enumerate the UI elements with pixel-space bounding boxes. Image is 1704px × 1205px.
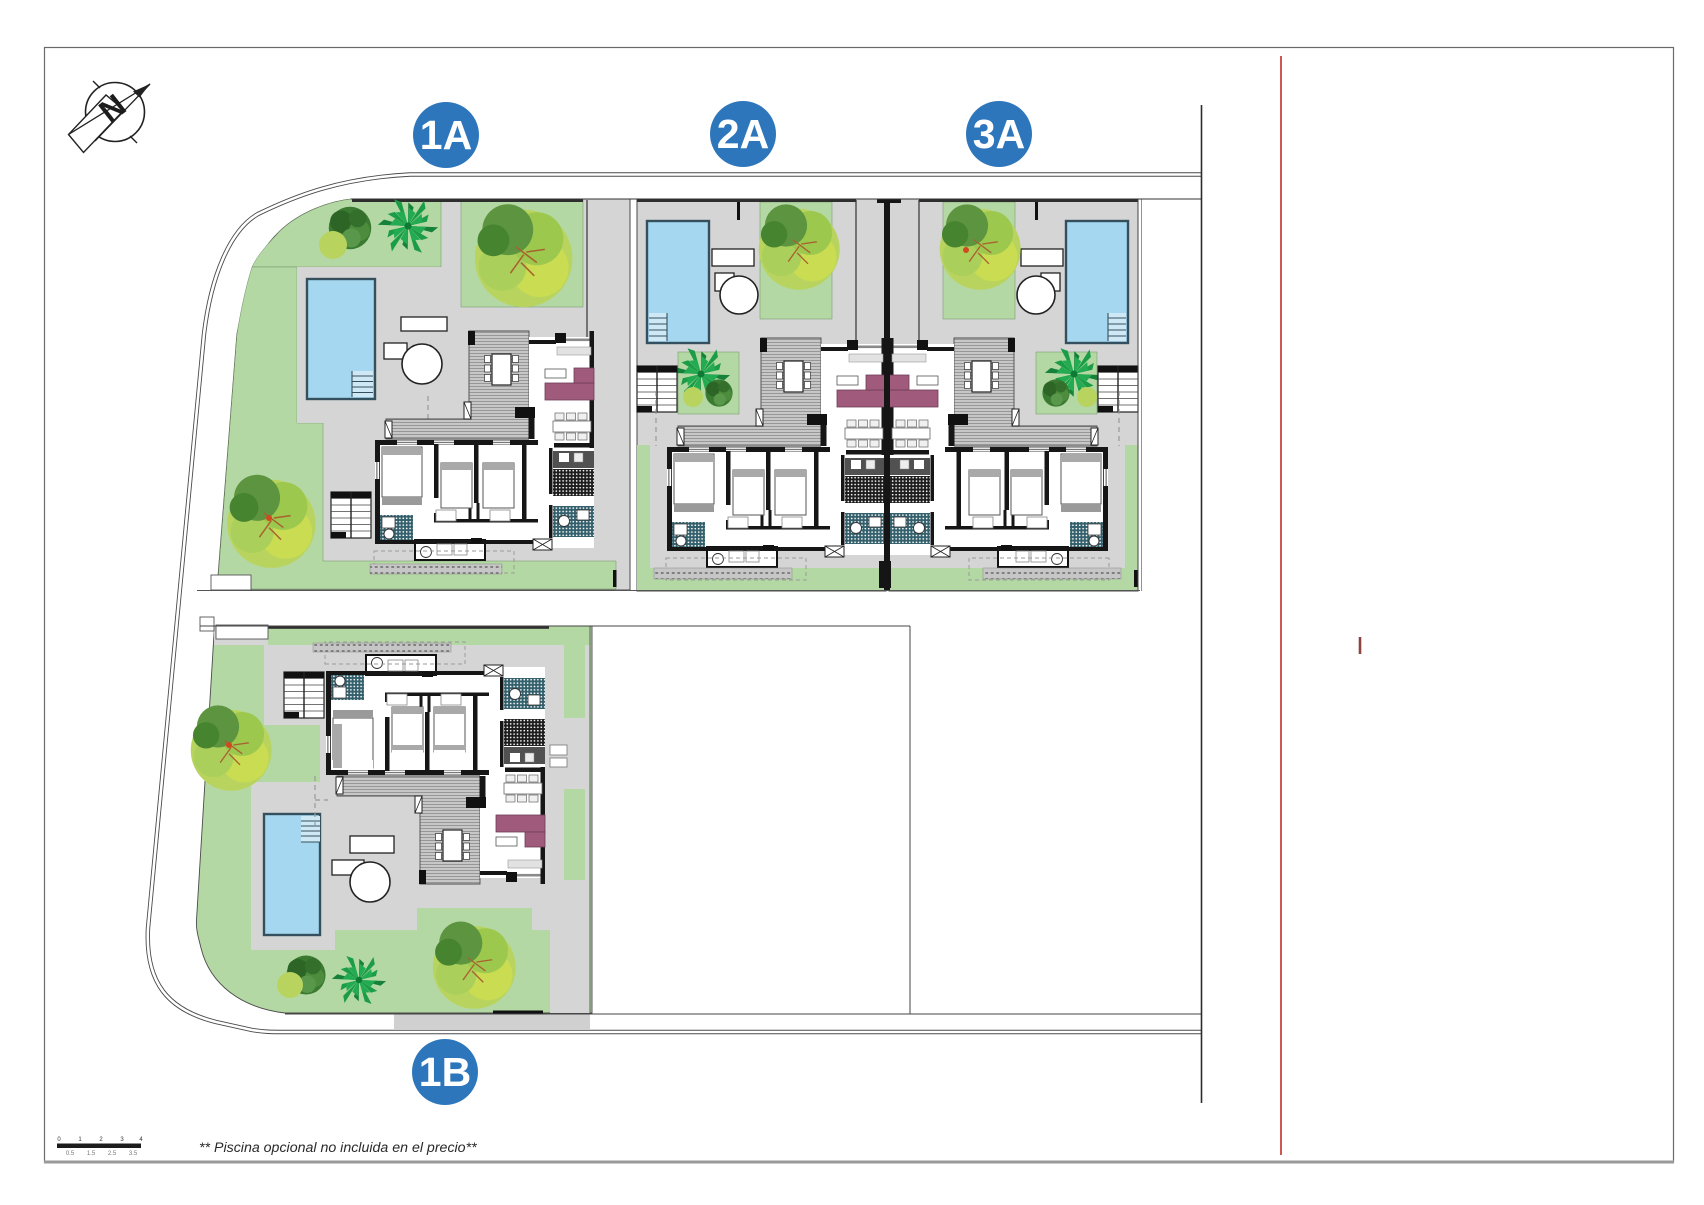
- svg-text:1B: 1B: [419, 1049, 471, 1095]
- svg-text:3.5: 3.5: [129, 1151, 138, 1157]
- svg-text:2.5: 2.5: [108, 1151, 117, 1157]
- svg-text:2A: 2A: [717, 111, 769, 157]
- svg-text:1.5: 1.5: [87, 1151, 96, 1157]
- svg-text:0.5: 0.5: [66, 1151, 75, 1157]
- svg-text:** Piscina opcional no incluid: ** Piscina opcional no incluida en el pr…: [199, 1140, 477, 1156]
- svg-text:1A: 1A: [420, 112, 472, 158]
- svg-text:3A: 3A: [973, 111, 1025, 157]
